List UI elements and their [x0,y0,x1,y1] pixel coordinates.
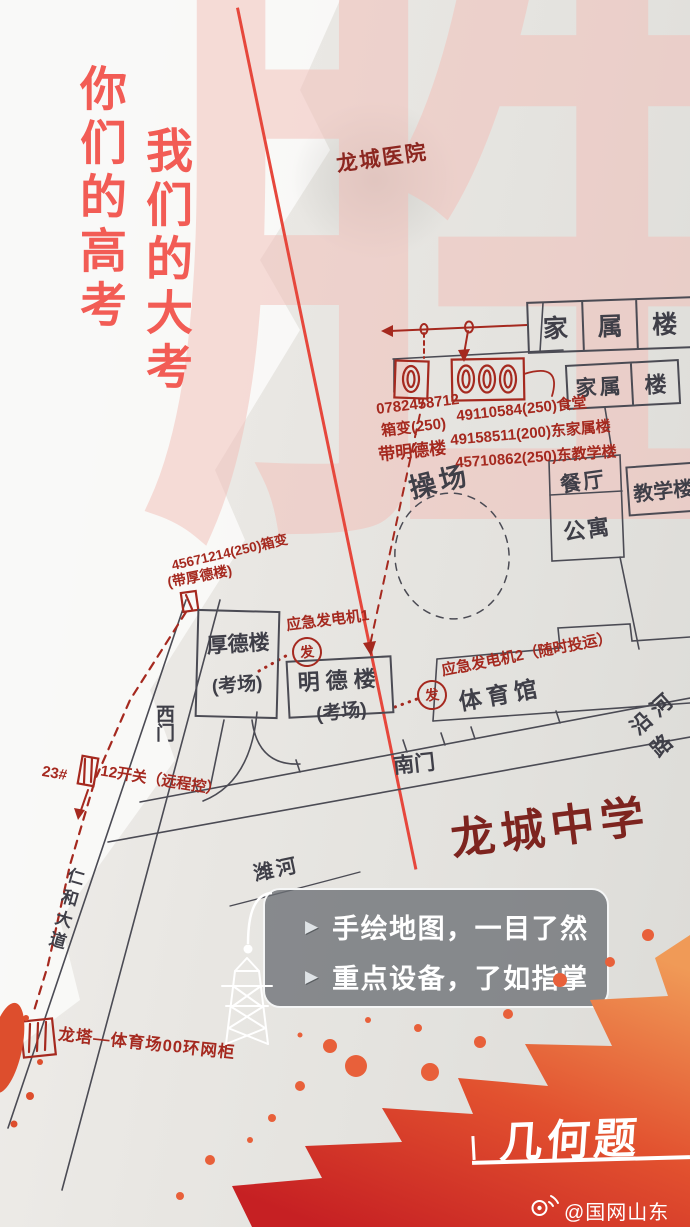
tag-text: 几何题 [498,1103,643,1170]
orange-splash [0,0,690,1227]
poster-canvas: 胜 你们的高考 我们的大考 [0,0,690,1227]
weibo-eye-icon [528,1192,562,1218]
credit-text: @国网山东电力 [564,1196,690,1227]
